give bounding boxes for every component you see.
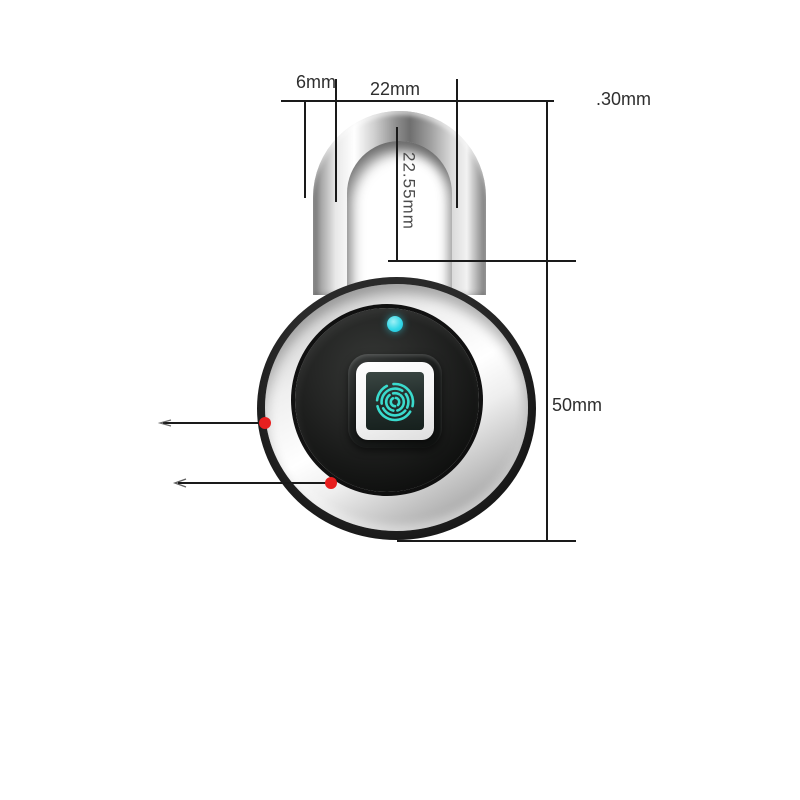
dim-line-right-vertical [546, 100, 548, 542]
lock-body [257, 277, 536, 540]
dim-tick-22mm-right [456, 79, 458, 208]
dim-tick-6mm-left [304, 100, 306, 198]
led-indicator-dot [387, 316, 403, 332]
dim-label-shackle-inner-width: 22mm [370, 80, 420, 98]
dim-line-body-bottom [397, 540, 576, 542]
leader-arrow-icon [157, 418, 173, 428]
leader-line-panel-edge [178, 482, 331, 484]
fingerprint-module [348, 354, 442, 448]
dim-label-shackle-thickness: 6mm [296, 73, 336, 91]
product-dimension-diagram: 6mm 22mm .30mm 22.55mm 50mm [0, 0, 800, 800]
dim-label-shackle-inner-height: 22.55mm [398, 152, 418, 230]
dim-label-body-height: 50mm [552, 396, 602, 414]
dim-line-top [281, 100, 554, 102]
fingerprint-frame [356, 362, 434, 440]
dim-label-top-right: .30mm [596, 90, 651, 108]
red-marker-dot [325, 477, 337, 489]
fingerprint-icon [369, 375, 421, 427]
leader-arrow-icon [171, 477, 189, 489]
red-marker-dot [259, 417, 271, 429]
fingerprint-screen [366, 372, 424, 430]
leader-line-body-edge [163, 422, 265, 424]
dim-tick-6mm-right [335, 79, 337, 202]
